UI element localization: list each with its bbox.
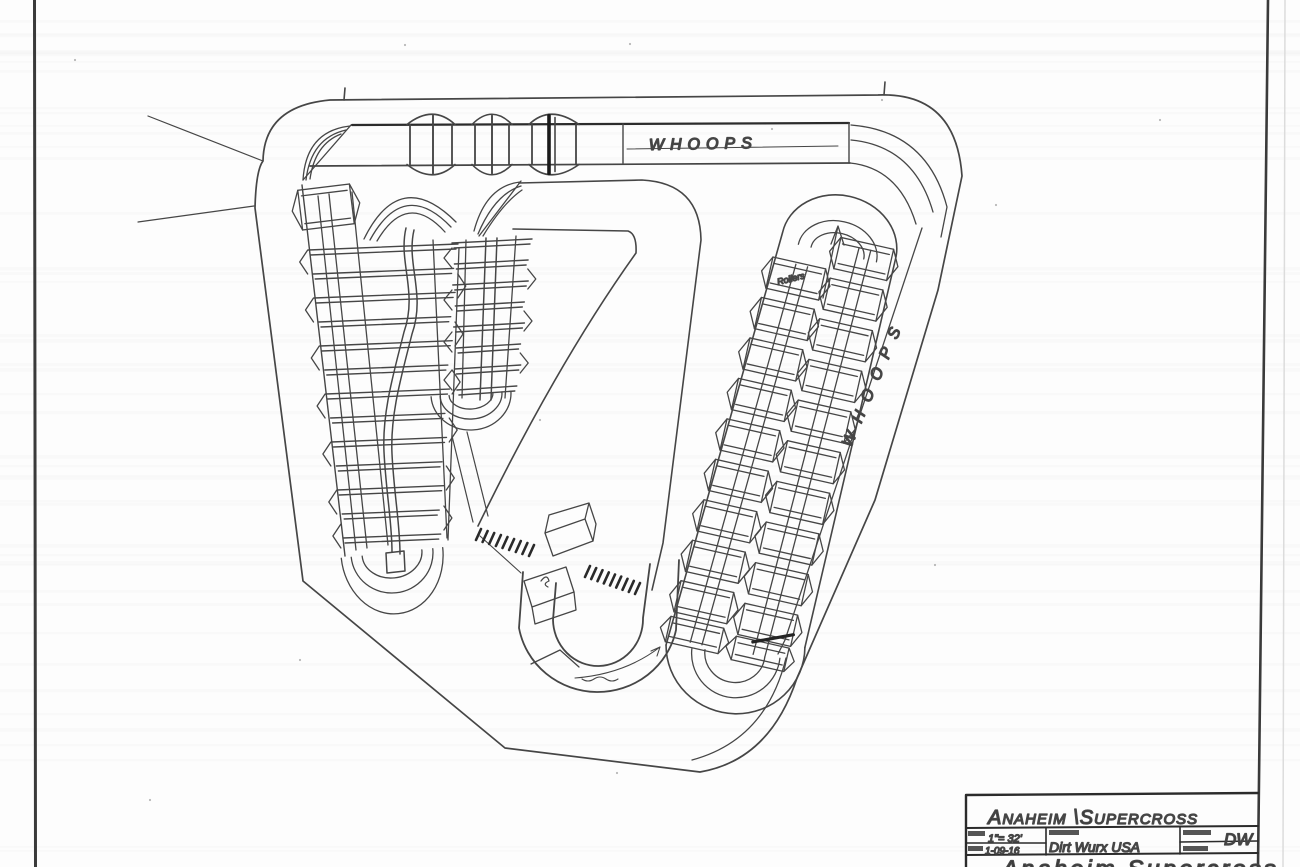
- svg-text:WHOOPS: WHOOPS: [649, 135, 758, 154]
- svg-text:Dirt Wurx USA: Dirt Wurx USA: [1049, 839, 1140, 855]
- svg-text:DW: DW: [1224, 830, 1254, 849]
- svg-text:ANAHEIM \SUPERCROSS: ANAHEIM \SUPERCROSS: [987, 807, 1198, 829]
- svg-text:Anaheim Supercross: Anaheim Supercross: [1000, 856, 1279, 867]
- svg-text:1"= 32': 1"= 32': [988, 833, 1023, 845]
